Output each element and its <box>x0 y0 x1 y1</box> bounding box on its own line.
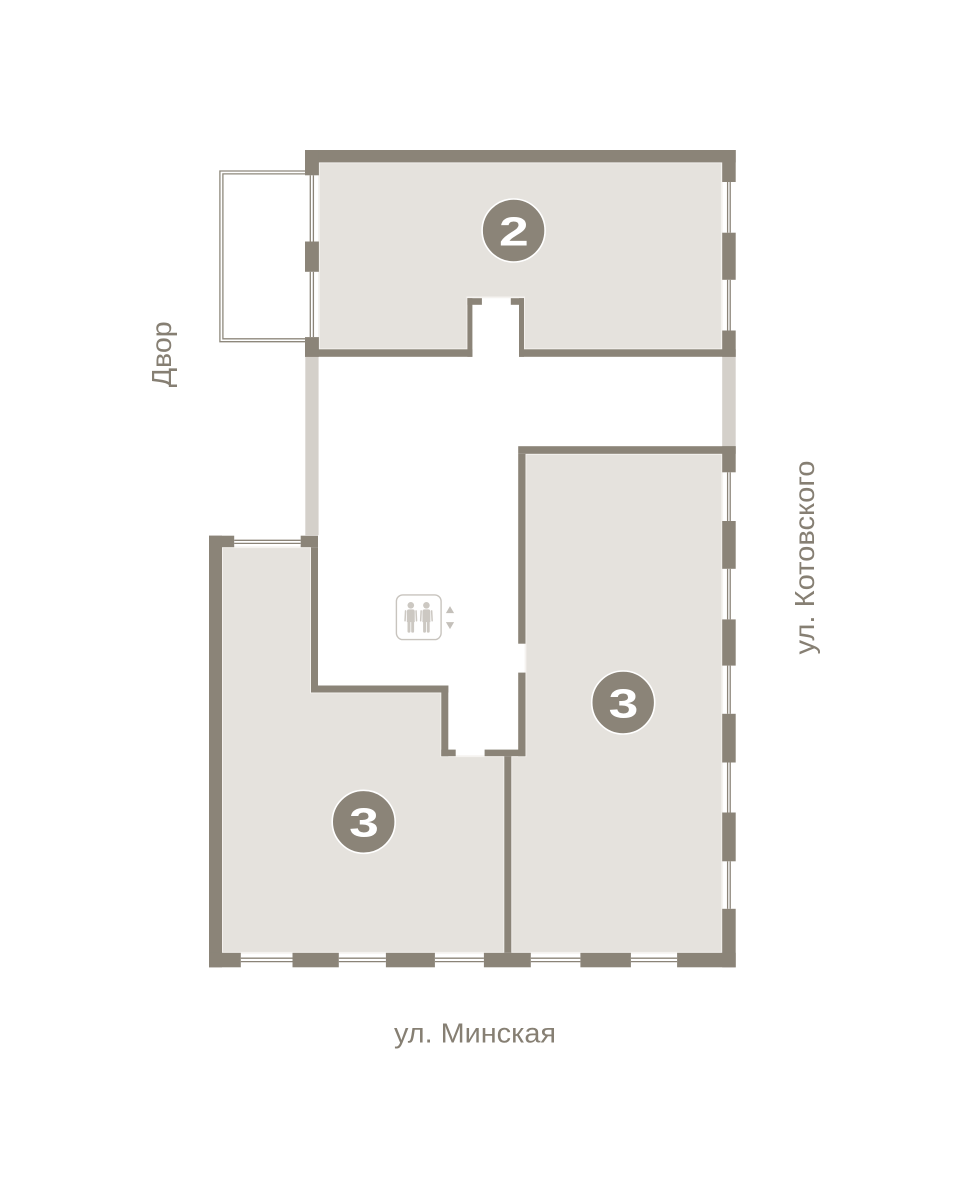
svg-text:ул. Котовского: ул. Котовского <box>789 461 820 655</box>
svg-text:Двор: Двор <box>146 321 177 387</box>
svg-text:2: 2 <box>499 210 529 255</box>
svg-text:ул. Минская: ул. Минская <box>394 1017 556 1048</box>
svg-text:3: 3 <box>349 801 379 846</box>
svg-text:3: 3 <box>609 681 639 726</box>
